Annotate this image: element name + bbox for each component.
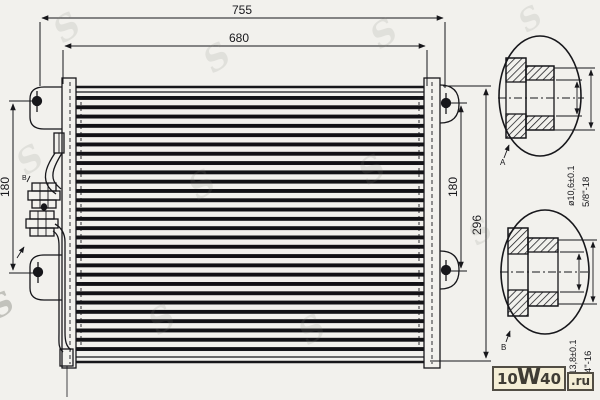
left-header-tank: [62, 78, 76, 368]
site-watermark: 10W40 .ru: [492, 366, 594, 391]
detail-a-callout: [498, 36, 595, 158]
condenser-core: [76, 87, 424, 362]
detail-a-label: A: [500, 158, 506, 167]
dim-core-width: 680: [229, 31, 249, 45]
detail-b-label: B: [501, 343, 506, 352]
bracket-bottom-right: [440, 251, 459, 289]
inlet-pipe-and-fittings: [26, 133, 73, 397]
detail-b-callout: [500, 210, 597, 342]
watermark-40: 40: [540, 370, 561, 389]
condenser-technical-drawing: 755 680 180 180 296 A ø10,6±0.1 5/8"-18 …: [0, 0, 600, 400]
bracket-bottom-left: [30, 255, 62, 300]
port-upper-label: B: [22, 175, 27, 182]
detail-a-thread: 5/8"-18: [581, 177, 592, 207]
bracket-top-left: [30, 87, 62, 129]
site-watermark-domain: .ru: [567, 372, 594, 391]
dim-overall-height: 296: [470, 215, 484, 235]
detail-a-diameter: ø10,6±0.1: [566, 166, 576, 206]
dim-overall-width: 755: [232, 3, 252, 17]
watermark-w: W: [517, 368, 541, 387]
port-leaders: [17, 176, 30, 258]
site-watermark-name: 10W40: [492, 366, 566, 391]
condenser-drawing-page: S S S S S S S S S S S: [0, 0, 600, 400]
dim-right-bracket-span: 180: [446, 177, 460, 197]
bracket-top-right: [440, 85, 459, 123]
watermark-10: 10: [497, 370, 518, 389]
dim-left-bracket-span: 180: [0, 177, 12, 197]
right-header-tank: [424, 78, 440, 368]
